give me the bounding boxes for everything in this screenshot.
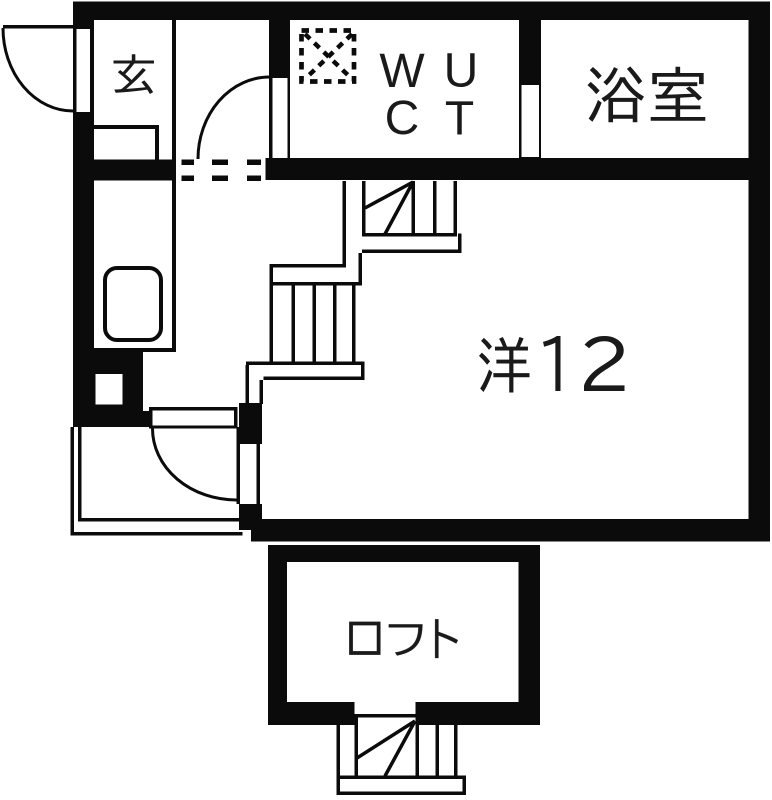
svg-text:W: W (379, 45, 425, 98)
svg-text:C: C (385, 92, 420, 145)
svg-text:U: U (444, 45, 479, 98)
svg-text:T: T (445, 93, 474, 146)
